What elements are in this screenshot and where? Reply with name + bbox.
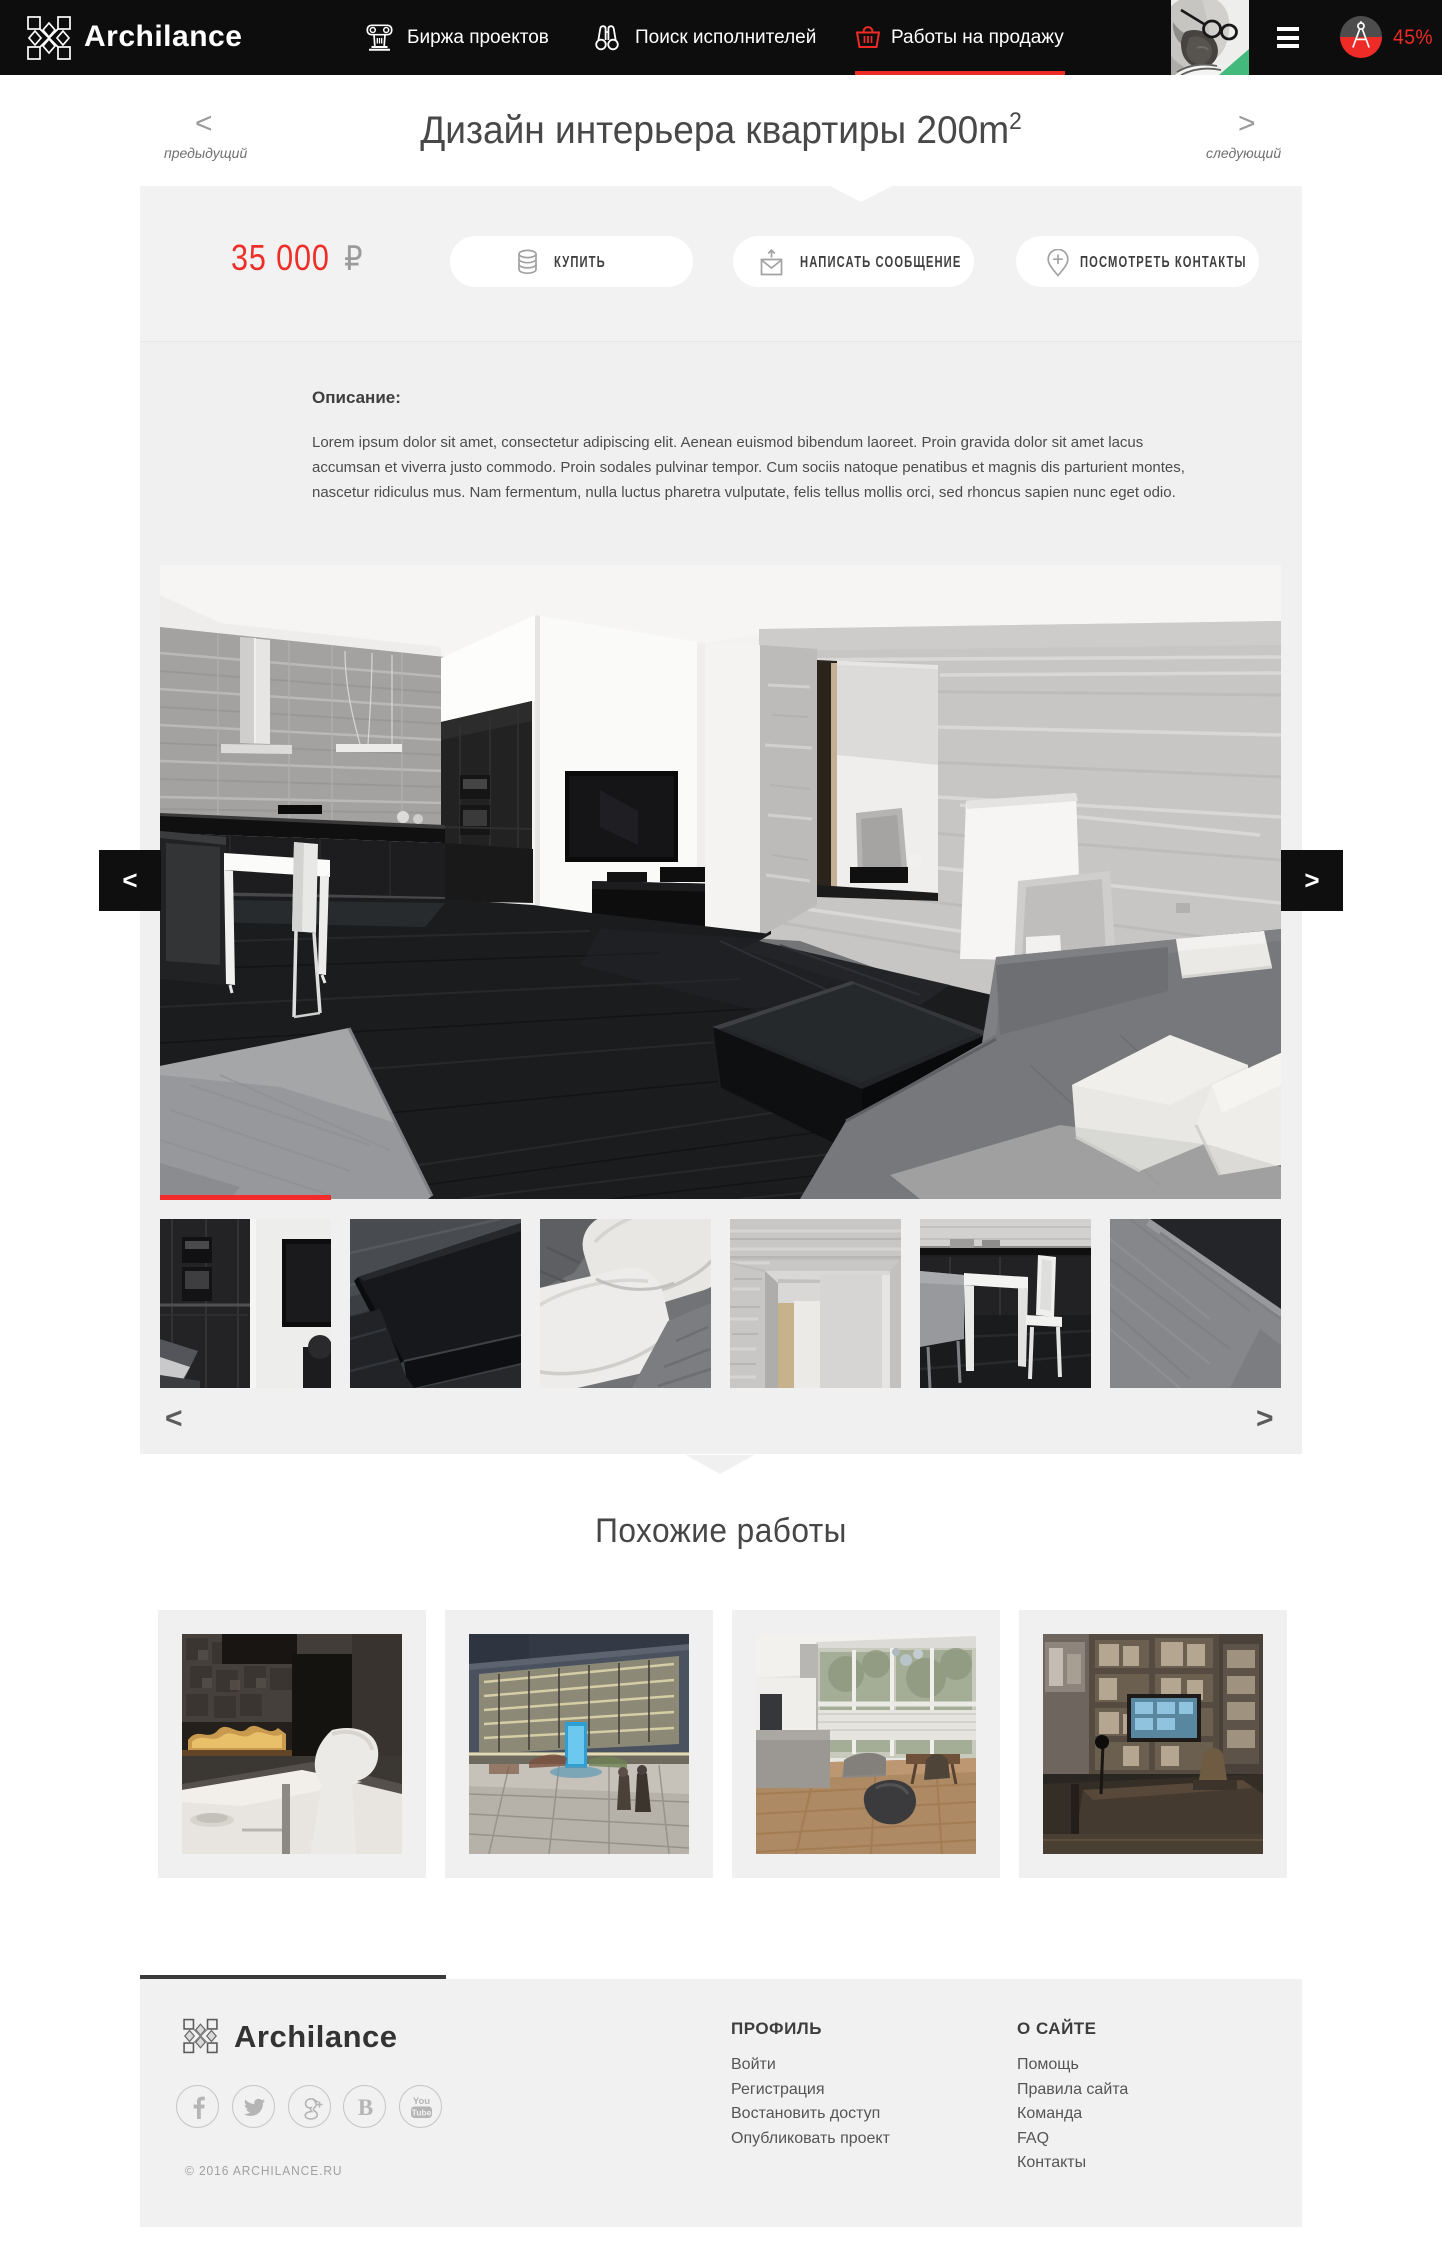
svg-text:You: You <box>413 2096 430 2107</box>
svg-text:Tube: Tube <box>412 2108 432 2118</box>
